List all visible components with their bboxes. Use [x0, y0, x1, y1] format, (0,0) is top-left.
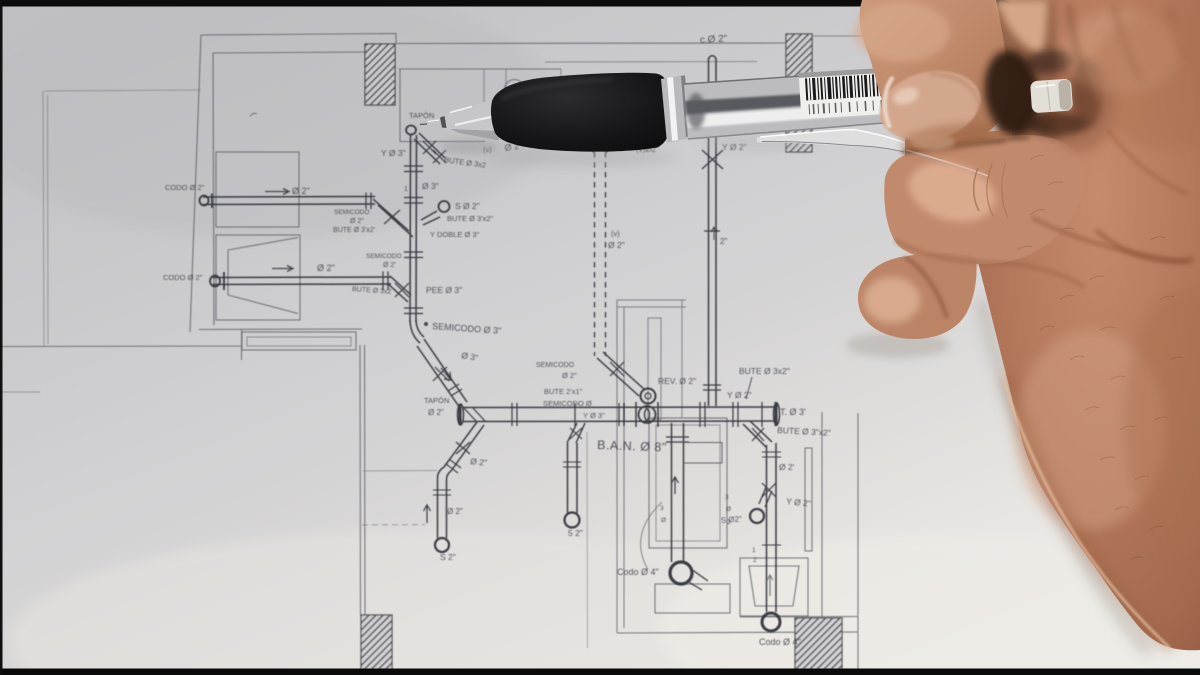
- svg-text:Y DOBLE Ø 3": Y DOBLE Ø 3": [430, 230, 480, 239]
- svg-text:2": 2": [720, 237, 727, 246]
- svg-text:Ø 2": Ø 2": [608, 240, 625, 250]
- svg-text:Ø 2": Ø 2": [562, 371, 577, 380]
- svg-text:SEMICODO Ø: SEMICODO Ø: [543, 399, 592, 408]
- svg-text:CODO Ø 2": CODO Ø 2": [163, 273, 203, 282]
- svg-text:3: 3: [660, 505, 664, 512]
- svg-text:TAPÓN: TAPÓN: [409, 111, 434, 120]
- svg-text:5 2": 5 2": [568, 528, 583, 538]
- svg-text:Ø 2": Ø 2": [317, 263, 335, 273]
- svg-text:BUTE Ø 3'x2': BUTE Ø 3'x2': [333, 227, 375, 234]
- svg-text:Ø 2": Ø 2": [292, 186, 310, 196]
- svg-text:Y Ø 3": Y Ø 3": [583, 411, 605, 420]
- svg-text:T. Ø 3': T. Ø 3': [780, 407, 806, 417]
- svg-text:Ø: Ø: [726, 506, 731, 513]
- svg-text:2: 2: [753, 557, 757, 564]
- svg-text:Ø: Ø: [661, 517, 666, 524]
- svg-text:Codo Ø 4": Codo Ø 4": [759, 637, 801, 647]
- svg-text:S Ø 2": S Ø 2": [455, 201, 480, 211]
- svg-text:Y Ø 2": Y Ø 2": [727, 390, 752, 400]
- svg-text:Ø 2": Ø 2": [350, 218, 364, 225]
- svg-text:Ø 2": Ø 2": [470, 456, 488, 468]
- svg-text:CODO Ø 2": CODO Ø 2": [165, 183, 205, 192]
- svg-text:3: 3: [725, 494, 729, 501]
- svg-text:S Ø2": S Ø2": [721, 515, 743, 525]
- svg-text:Ø 2": Ø 2": [428, 408, 444, 417]
- svg-text:REV. Ø 2": REV. Ø 2": [658, 376, 696, 386]
- svg-text:SEMICODO: SEMICODO: [334, 209, 369, 216]
- svg-text:SEMICODO: SEMICODO: [536, 362, 575, 369]
- svg-text:Ø 2': Ø 2': [383, 262, 396, 269]
- svg-text:Codo Ø 4": Codo Ø 4": [617, 567, 659, 577]
- svg-text:Y Ø 3": Y Ø 3": [381, 148, 406, 158]
- svg-text:c.Ø 2": c.Ø 2": [700, 34, 728, 46]
- svg-text:SEMICODO: SEMICODO: [366, 253, 401, 260]
- svg-text:1: 1: [752, 547, 756, 554]
- svg-text:B.A.N. Ø 8": B.A.N. Ø 8": [597, 438, 667, 454]
- svg-text:TAPÓN: TAPÓN: [424, 396, 449, 405]
- svg-text:BUTE Ø 3x2": BUTE Ø 3x2": [739, 366, 790, 376]
- svg-text:1: 1: [404, 186, 408, 193]
- svg-text:2: 2: [727, 519, 731, 526]
- svg-text:PEE Ø 3": PEE Ø 3": [426, 285, 462, 295]
- svg-text:Ø 2': Ø 2': [779, 462, 795, 472]
- svg-text:(v): (v): [611, 229, 620, 238]
- svg-text:BUTE 2'x1": BUTE 2'x1": [544, 387, 583, 396]
- svg-text:BUTE Ø 3'x2": BUTE Ø 3'x2": [447, 214, 494, 223]
- svg-text:Ø 2": Ø 2": [447, 507, 463, 516]
- svg-text:Ø 3": Ø 3": [422, 181, 439, 191]
- svg-text:S 2": S 2": [440, 552, 456, 562]
